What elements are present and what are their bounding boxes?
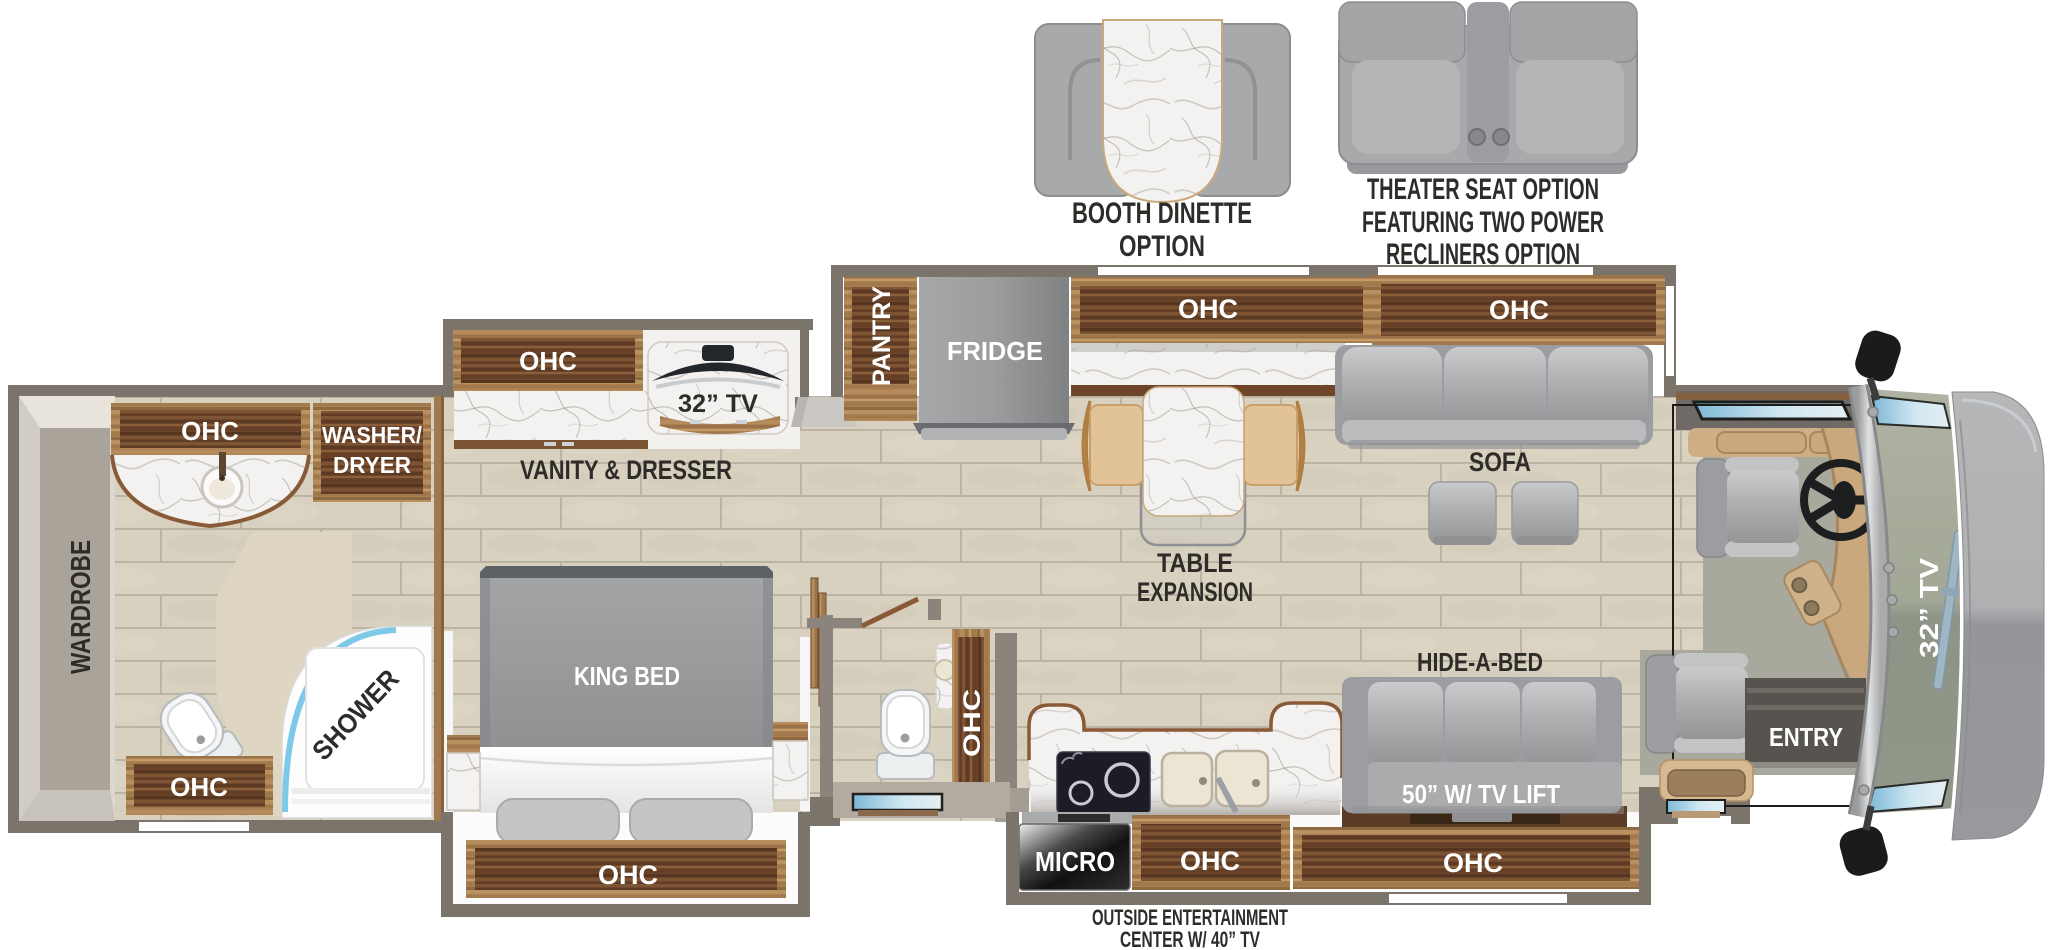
svg-text:ENTRY: ENTRY xyxy=(1769,722,1843,752)
svg-text:THEATER SEAT OPTION: THEATER SEAT OPTION xyxy=(1367,173,1599,206)
svg-text:OHC: OHC xyxy=(519,346,577,376)
svg-text:CENTER W/ 40” TV: CENTER W/ 40” TV xyxy=(1120,927,1260,950)
svg-text:VANITY & DRESSER: VANITY & DRESSER xyxy=(520,455,732,485)
svg-text:OHC: OHC xyxy=(959,689,986,757)
svg-text:OHC: OHC xyxy=(1443,848,1503,878)
svg-text:OHC: OHC xyxy=(1489,295,1549,325)
svg-text:PANTRY: PANTRY xyxy=(868,286,896,386)
svg-text:DRYER: DRYER xyxy=(333,452,411,478)
svg-text:OHC: OHC xyxy=(1178,294,1238,324)
svg-text:HIDE-A-BED: HIDE-A-BED xyxy=(1417,647,1543,677)
svg-text:FRIDGE: FRIDGE xyxy=(947,336,1043,366)
svg-text:OPTION: OPTION xyxy=(1119,230,1205,263)
svg-text:WASHER/: WASHER/ xyxy=(322,422,423,448)
svg-text:FEATURING TWO POWER: FEATURING TWO POWER xyxy=(1362,206,1604,239)
svg-text:OHC: OHC xyxy=(1180,846,1240,876)
svg-text:RECLINERS OPTION: RECLINERS OPTION xyxy=(1386,238,1580,271)
svg-text:32” TV: 32” TV xyxy=(1914,557,1944,658)
svg-text:WARDROBE: WARDROBE xyxy=(65,540,96,674)
svg-text:MICRO: MICRO xyxy=(1035,846,1115,877)
svg-text:BOOTH DINETTE: BOOTH DINETTE xyxy=(1072,197,1252,230)
svg-text:OHC: OHC xyxy=(598,860,658,890)
svg-text:KING BED: KING BED xyxy=(574,661,680,691)
svg-text:50” W/ TV LIFT: 50” W/ TV LIFT xyxy=(1402,779,1560,809)
svg-text:32” TV: 32” TV xyxy=(678,390,758,418)
svg-text:TABLE: TABLE xyxy=(1157,548,1233,578)
svg-text:SOFA: SOFA xyxy=(1469,447,1531,477)
svg-text:OHC: OHC xyxy=(181,416,239,446)
svg-text:EXPANSION: EXPANSION xyxy=(1137,577,1253,607)
svg-text:OHC: OHC xyxy=(170,772,228,802)
